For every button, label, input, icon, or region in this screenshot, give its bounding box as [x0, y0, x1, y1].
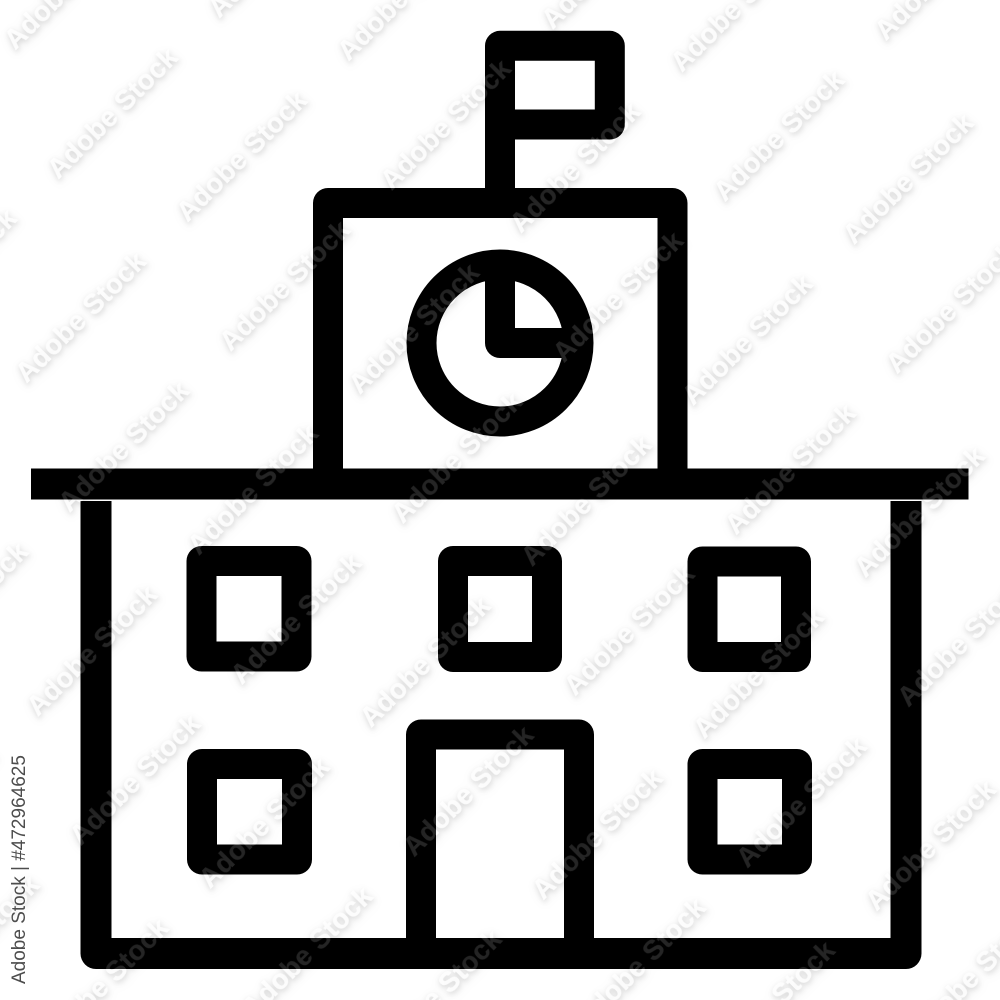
svg-text:Adobe Stock: Adobe Stock [0, 535, 34, 678]
svg-text:Adobe Stock: Adobe Stock [707, 63, 850, 206]
svg-text:Adobe Stock: Adobe Stock [718, 397, 861, 540]
svg-text:Adobe Stock: Adobe Stock [859, 773, 1000, 916]
svg-text:Adobe Stock: Adobe Stock [170, 84, 313, 227]
svg-text:Adobe Stock: Adobe Stock [9, 245, 152, 388]
svg-text:Adobe Stock: Adobe Stock [0, 0, 12, 12]
svg-text:Adobe Stock: Adobe Stock [557, 558, 700, 701]
svg-text:Adobe Stock: Adobe Stock [535, 0, 678, 34]
svg-text:Adobe Stock: Adobe Stock [836, 106, 979, 249]
svg-text:Adobe Stock: Adobe Stock [202, 0, 345, 23]
svg-text:Adobe Stock: Adobe Stock [0, 202, 23, 345]
svg-text:Adobe Stock: Adobe Stock [675, 267, 818, 410]
svg-text:Adobe Stock: Adobe Stock [0, 0, 141, 55]
svg-text:Adobe Stock: Adobe Stock [526, 762, 669, 905]
svg-text:Adobe Stock: Adobe Stock [331, 0, 474, 66]
svg-text:Adobe Stock: Adobe Stock [41, 41, 184, 184]
svg-text:Adobe Stock: Adobe Stock [868, 0, 1000, 46]
svg-text:Adobe Stock: Adobe Stock [0, 739, 3, 882]
svg-text:Adobe Stock: Adobe Stock [664, 0, 807, 77]
svg-text:Adobe Stock: Adobe Stock [514, 428, 657, 571]
svg-text:Adobe Stock: Adobe Stock [879, 236, 1000, 379]
